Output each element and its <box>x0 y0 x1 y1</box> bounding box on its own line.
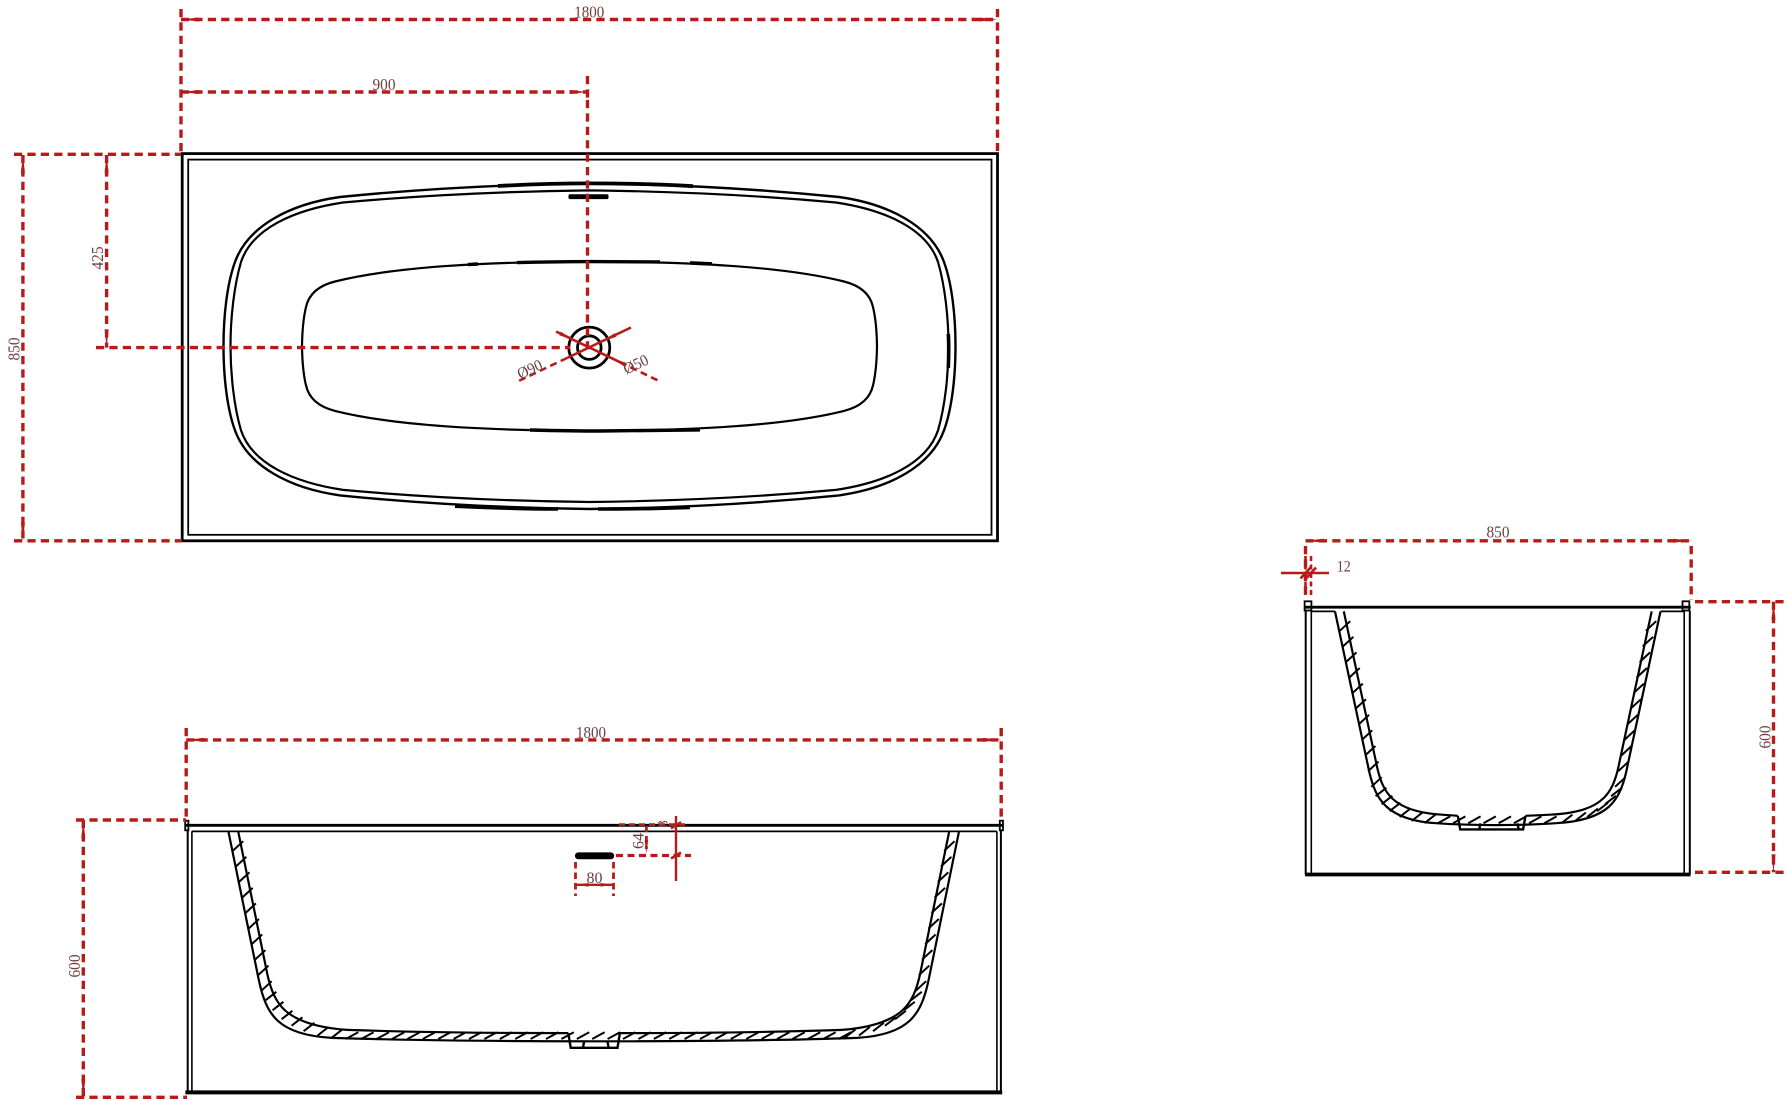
svg-text:1800: 1800 <box>574 3 604 22</box>
svg-text:1800: 1800 <box>576 723 606 742</box>
svg-text:64: 64 <box>631 833 648 849</box>
svg-text:80: 80 <box>587 870 603 887</box>
svg-text:850: 850 <box>1487 523 1510 542</box>
svg-text:8: 8 <box>655 820 671 828</box>
svg-text:900: 900 <box>373 75 396 94</box>
svg-text:12: 12 <box>1337 559 1351 576</box>
svg-text:850: 850 <box>5 338 24 361</box>
svg-text:600: 600 <box>65 955 84 978</box>
svg-text:425: 425 <box>88 247 107 270</box>
svg-text:Ø90: Ø90 <box>515 357 546 383</box>
svg-text:600: 600 <box>1756 726 1775 749</box>
